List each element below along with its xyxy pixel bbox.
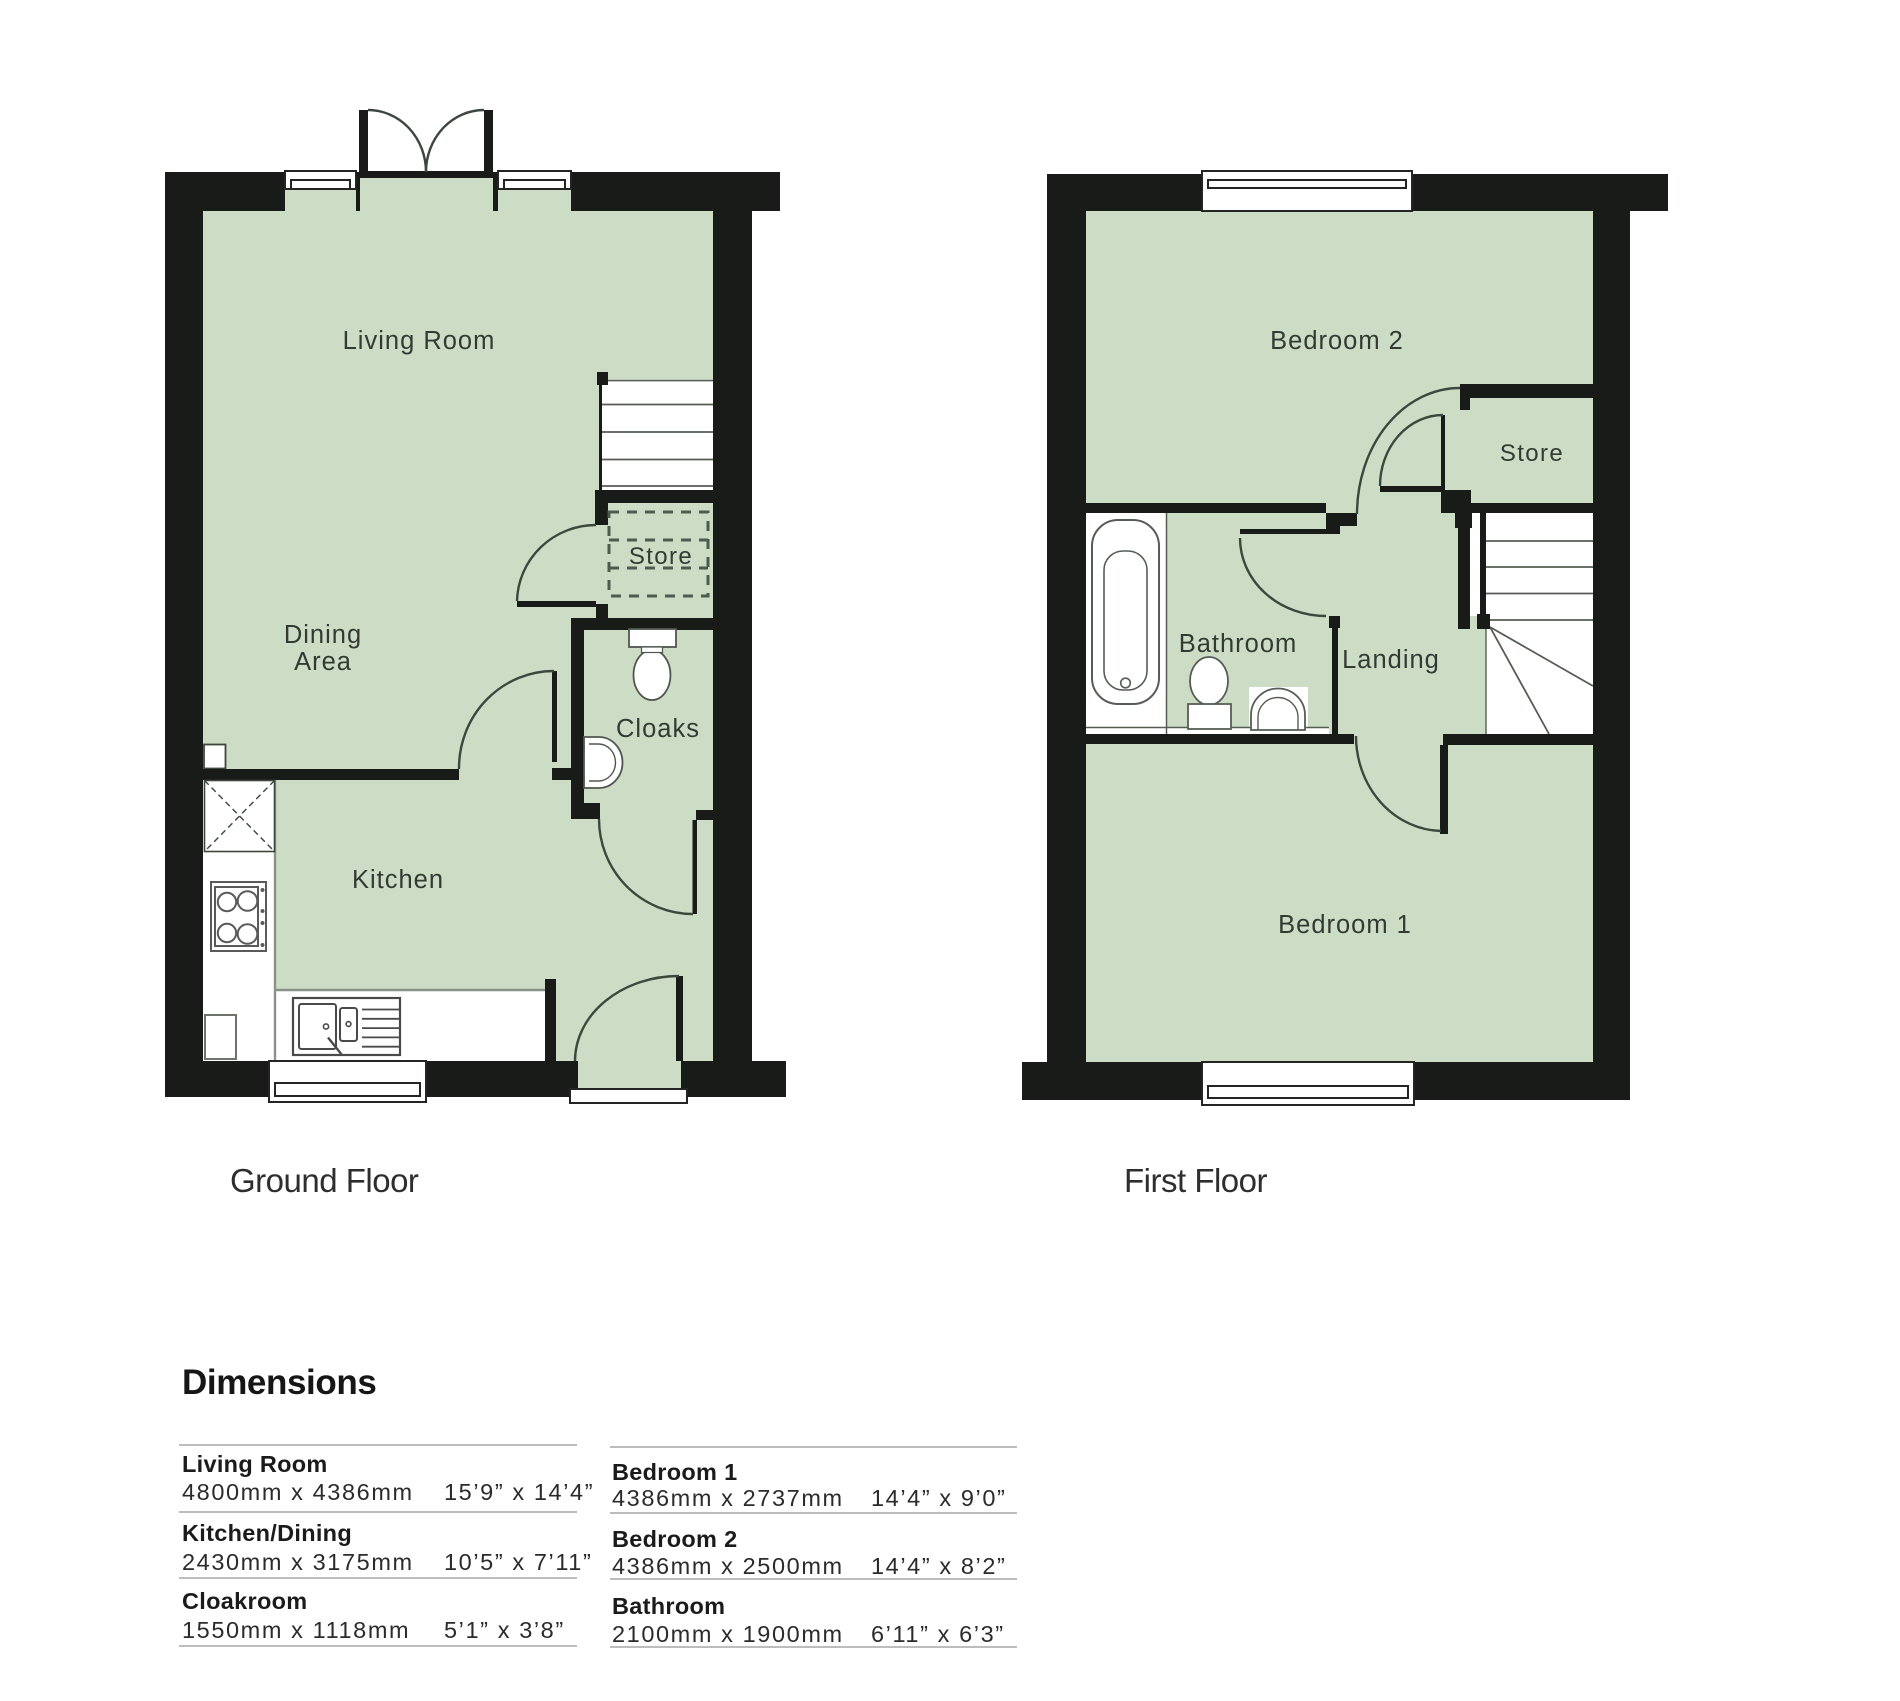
svg-text:Kitchen: Kitchen: [352, 866, 444, 894]
svg-text:4800mm x 4386mm: 4800mm x 4386mm: [182, 1479, 414, 1505]
svg-text:Landing: Landing: [1342, 646, 1440, 674]
svg-text:Store: Store: [1500, 440, 1564, 467]
svg-text:Bathroom: Bathroom: [1179, 630, 1298, 658]
svg-text:2430mm x 3175mm: 2430mm x 3175mm: [182, 1549, 414, 1575]
svg-text:5’1” x 3’8”: 5’1” x 3’8”: [444, 1617, 565, 1643]
svg-text:Bathroom: Bathroom: [612, 1593, 725, 1619]
svg-text:Dining: Dining: [284, 621, 362, 649]
svg-text:1550mm x 1118mm: 1550mm x 1118mm: [182, 1617, 410, 1643]
svg-text:Cloakroom: Cloakroom: [182, 1588, 307, 1614]
svg-text:Bedroom 1: Bedroom 1: [1278, 911, 1412, 939]
svg-text:Kitchen/Dining: Kitchen/Dining: [182, 1520, 352, 1546]
svg-text:Cloaks: Cloaks: [616, 715, 700, 743]
svg-text:6’11” x 6’3”: 6’11” x 6’3”: [871, 1621, 1005, 1647]
svg-text:Bedroom 1: Bedroom 1: [612, 1459, 737, 1485]
svg-text:2100mm x 1900mm: 2100mm x 1900mm: [612, 1621, 844, 1647]
svg-text:Bedroom 2: Bedroom 2: [612, 1526, 737, 1552]
svg-text:Living Room: Living Room: [182, 1451, 328, 1477]
svg-text:Living Room: Living Room: [343, 327, 496, 355]
svg-text:14’4” x 9’0”: 14’4” x 9’0”: [871, 1485, 1006, 1511]
svg-text:15’9” x 14’4”: 15’9” x 14’4”: [444, 1479, 594, 1505]
svg-text:4386mm x 2500mm: 4386mm x 2500mm: [612, 1553, 844, 1579]
svg-text:14’4” x 8’2”: 14’4” x 8’2”: [871, 1553, 1006, 1579]
svg-text:Store: Store: [629, 543, 693, 570]
svg-text:Area: Area: [294, 648, 352, 676]
svg-text:Dimensions: Dimensions: [182, 1363, 376, 1402]
svg-text:First Floor: First Floor: [1124, 1162, 1268, 1199]
svg-text:4386mm x 2737mm: 4386mm x 2737mm: [612, 1485, 844, 1511]
svg-text:Bedroom 2: Bedroom 2: [1270, 327, 1404, 355]
svg-text:Ground Floor: Ground Floor: [230, 1162, 419, 1199]
svg-text:10’5” x 7’11”: 10’5” x 7’11”: [444, 1549, 592, 1575]
